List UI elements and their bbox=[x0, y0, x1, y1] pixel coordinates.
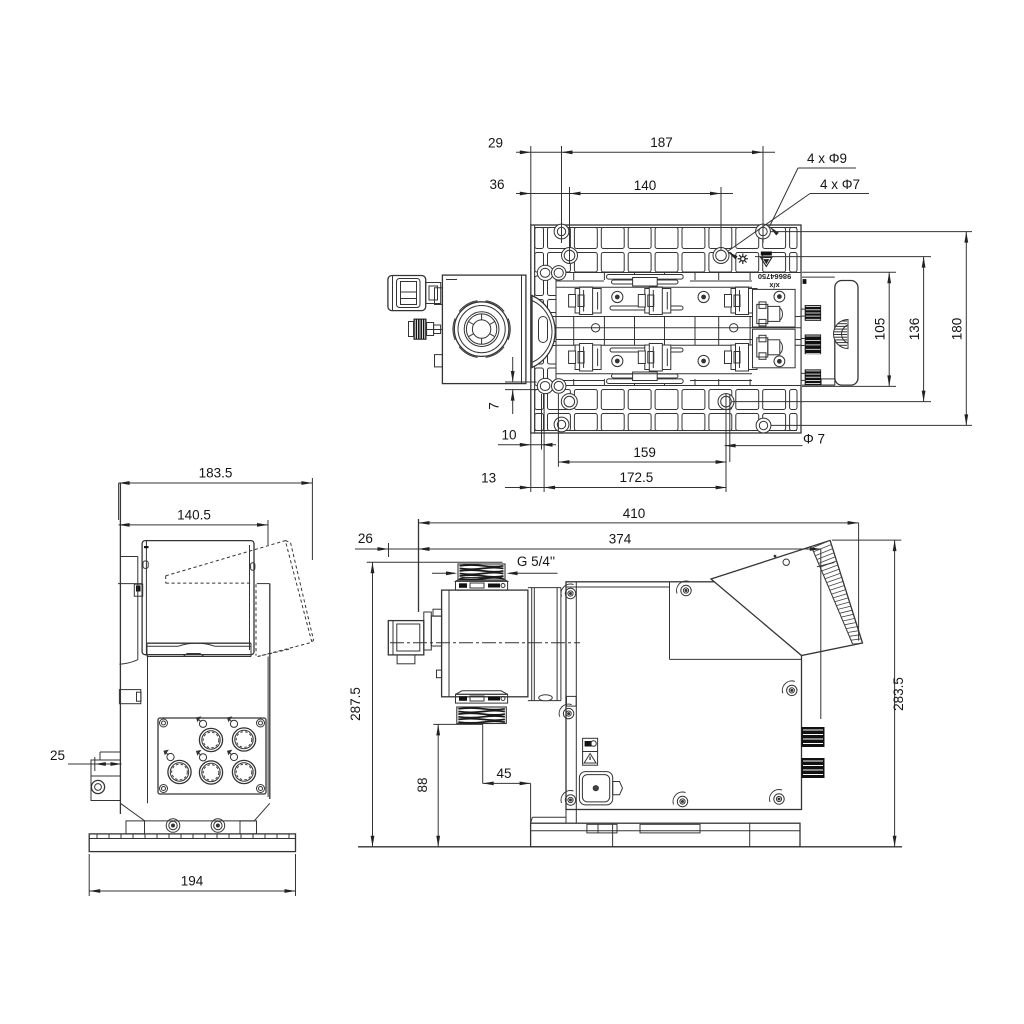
svg-text:26: 26 bbox=[358, 531, 373, 546]
svg-text:180: 180 bbox=[950, 318, 965, 341]
svg-text:374: 374 bbox=[609, 532, 632, 547]
svg-text:140: 140 bbox=[634, 178, 657, 193]
svg-text:45: 45 bbox=[496, 766, 511, 781]
svg-text:98664750: 98664750 bbox=[758, 272, 791, 281]
svg-text:29: 29 bbox=[488, 136, 503, 151]
svg-text:159: 159 bbox=[633, 445, 656, 460]
svg-text:287.5: 287.5 bbox=[348, 687, 363, 721]
svg-text:Φ 7: Φ 7 bbox=[803, 432, 825, 447]
svg-text:88: 88 bbox=[415, 777, 430, 792]
svg-text:172.5: 172.5 bbox=[620, 470, 654, 485]
svg-text:410: 410 bbox=[623, 506, 646, 521]
svg-text:x/x: x/x bbox=[768, 281, 779, 290]
svg-text:140.5: 140.5 bbox=[177, 508, 211, 523]
svg-text:10: 10 bbox=[501, 428, 516, 443]
svg-text:183.5: 183.5 bbox=[199, 466, 233, 481]
svg-text:105: 105 bbox=[873, 318, 888, 341]
svg-text:136: 136 bbox=[907, 318, 922, 341]
svg-text:G 5/4'': G 5/4'' bbox=[517, 554, 555, 569]
svg-text:283.5: 283.5 bbox=[891, 677, 906, 711]
svg-text:4 x Φ7: 4 x Φ7 bbox=[820, 177, 860, 192]
svg-text:194: 194 bbox=[181, 874, 204, 889]
svg-text:7: 7 bbox=[487, 402, 502, 410]
svg-text:13: 13 bbox=[481, 471, 496, 486]
svg-text:4 x Φ9: 4 x Φ9 bbox=[807, 151, 847, 166]
svg-text:187: 187 bbox=[650, 135, 673, 150]
svg-text:25: 25 bbox=[50, 748, 65, 763]
svg-text:36: 36 bbox=[489, 177, 504, 192]
